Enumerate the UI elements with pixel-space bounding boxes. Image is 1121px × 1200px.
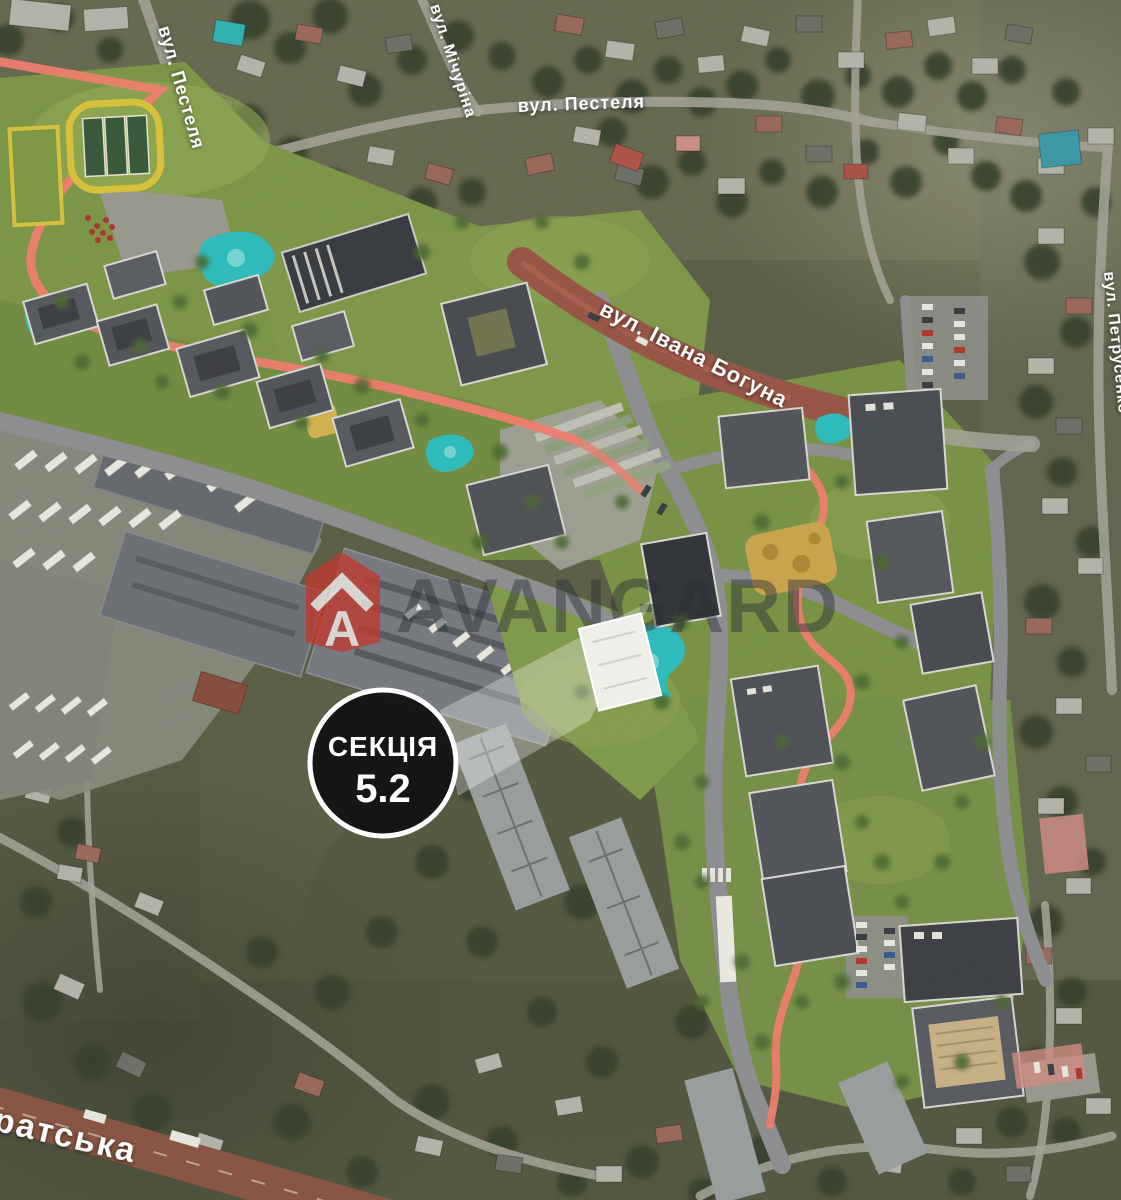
aerial-masterplan-map[interactable]: вул. Пестеля вул. Пестеля вул. Мічуріна … — [0, 0, 1121, 1200]
watermark-logo-letter: A — [324, 601, 360, 657]
callout-section-number: 5.2 — [355, 767, 411, 811]
callout-circle — [310, 690, 456, 836]
callout-section-label: СЕКЦІЯ — [328, 731, 438, 762]
map-render: вул. Пестеля вул. Пестеля вул. Мічуріна … — [0, 0, 1121, 1200]
